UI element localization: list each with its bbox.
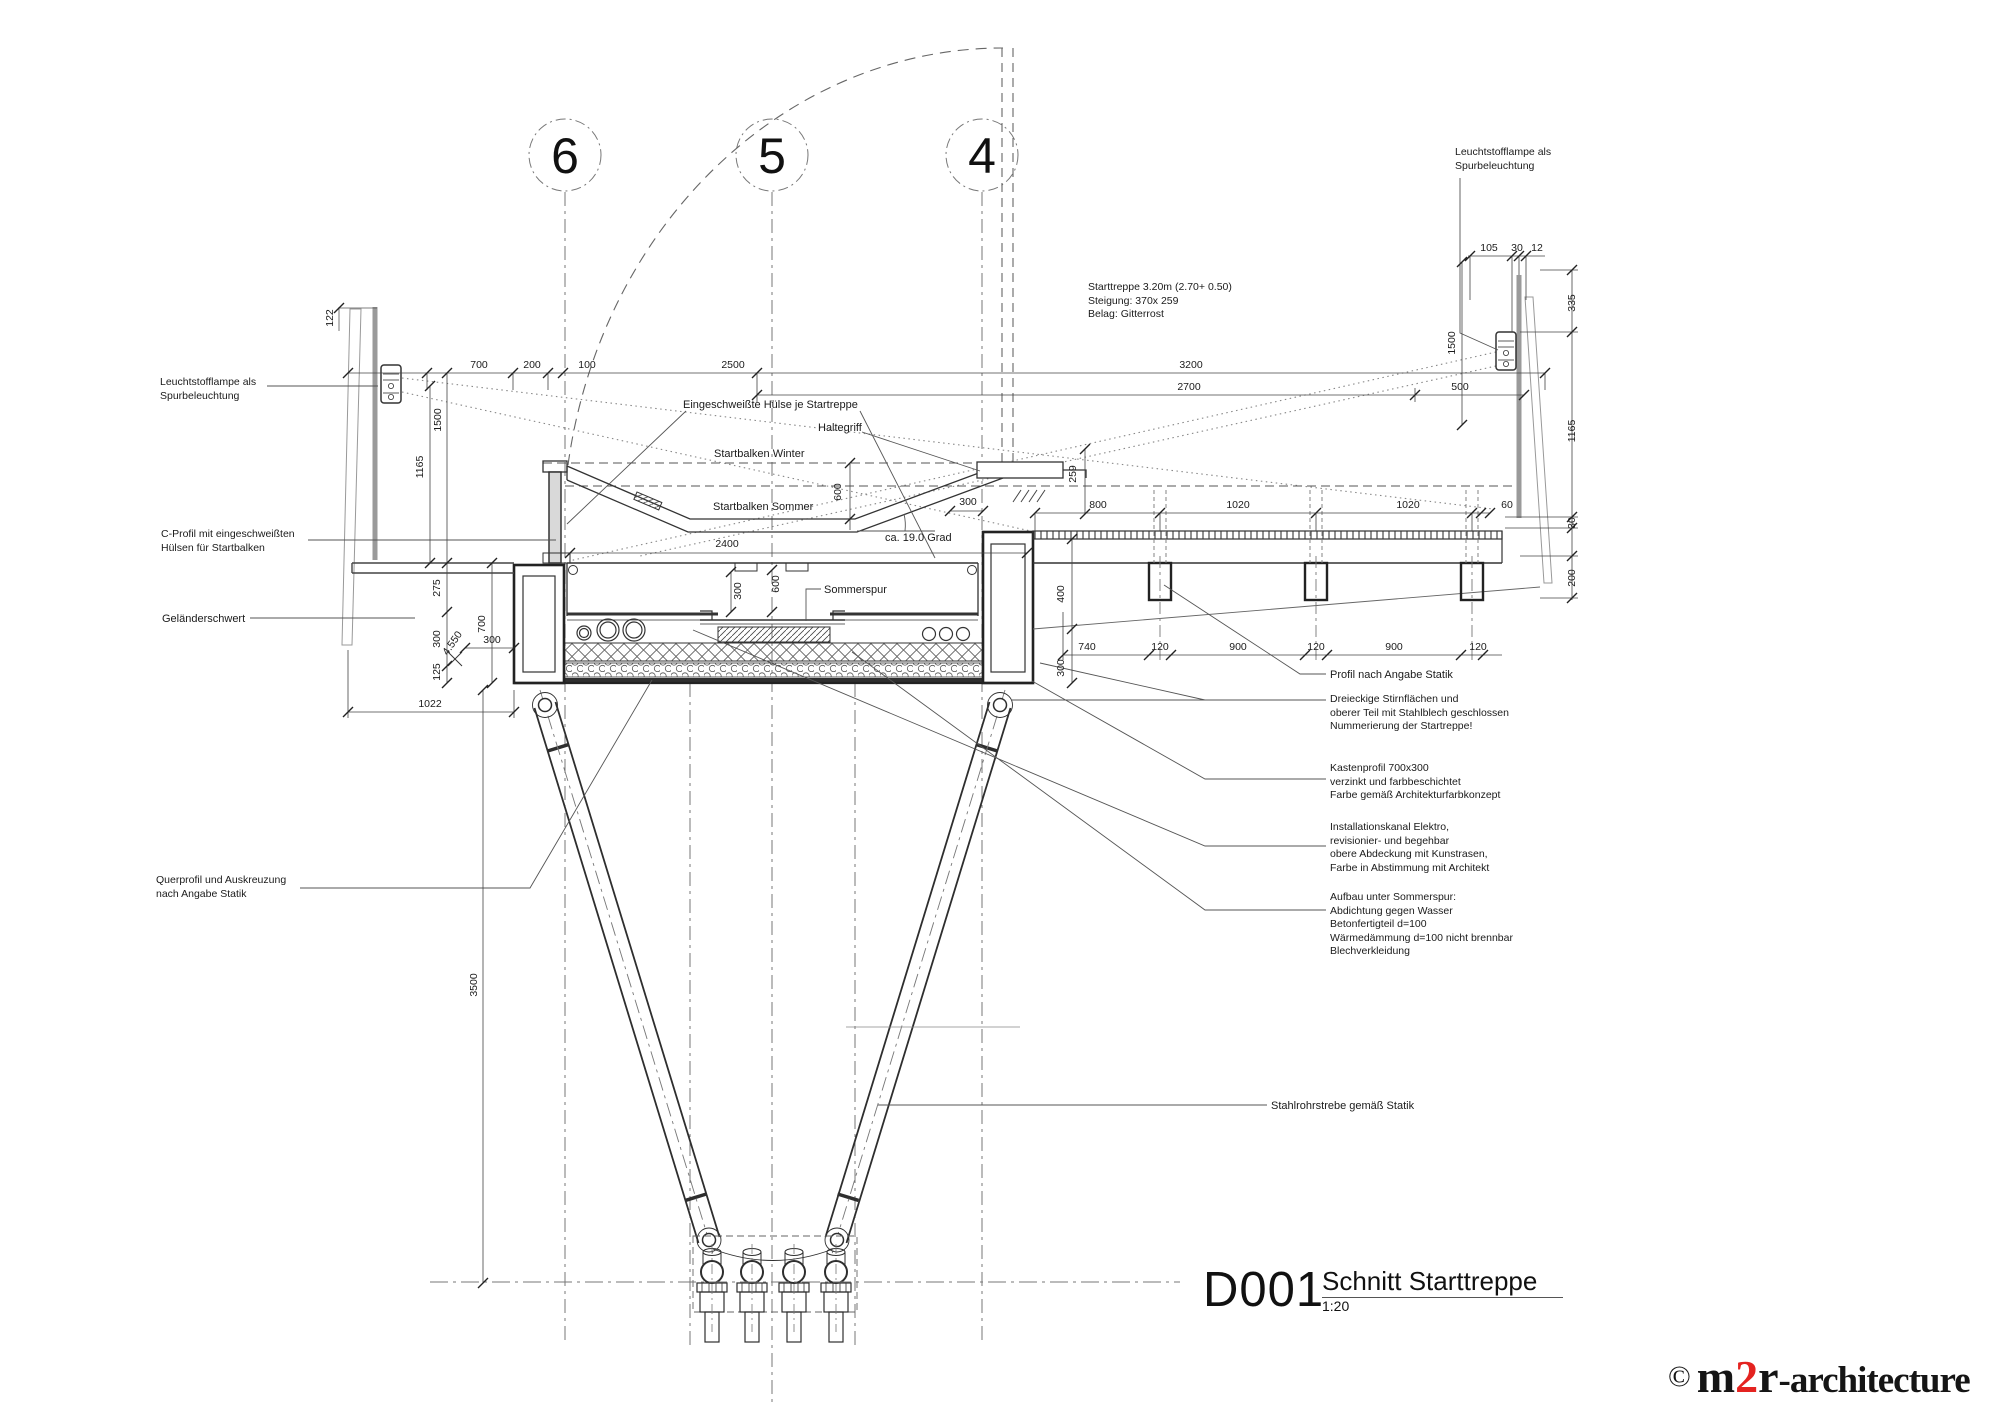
dim-700-top: 700	[470, 359, 488, 371]
label-line: Starttreppe 3.20m (2.70+ 0.50)	[1088, 281, 1232, 295]
sommerspur-track	[700, 611, 845, 642]
dim-200: 200	[523, 359, 541, 371]
label-line: Kastenprofil 700x300	[1330, 762, 1500, 776]
logo-m: m	[1697, 1351, 1735, 1402]
label-profil-statik: Profil nach Angabe Statik	[1330, 669, 1453, 681]
lamp-sight-lines	[402, 352, 1496, 561]
dim-400: 400	[1055, 585, 1067, 603]
label-stair-info: Starttreppe 3.20m (2.70+ 0.50) Steigung:…	[1088, 281, 1232, 322]
right-platform	[1033, 531, 1540, 629]
label-kastenprofil: Kastenprofil 700x300 verzinkt und farbbe…	[1330, 762, 1500, 803]
label-huelse: Eingeschweißte Hülse je Startreppe	[683, 399, 858, 411]
copyright-icon: ©	[1668, 1360, 1697, 1393]
dim-125: 125	[431, 663, 443, 681]
dim-259: 259	[1067, 465, 1079, 483]
label-gelaenderschwert: Geländerschwert	[162, 613, 245, 625]
left-lamp	[381, 365, 401, 403]
dim-275: 275	[431, 579, 443, 597]
label-line: obere Abdeckung mit Kunstrasen,	[1330, 848, 1489, 862]
title-underline	[1322, 1297, 1563, 1298]
label-line: Wärmedämmung d=100 nicht brennbar	[1330, 932, 1513, 946]
dim-120-b: 120	[1307, 641, 1325, 653]
label-c-profil: C-Profil mit eingeschweißten Hülsen für …	[161, 528, 295, 555]
label-line: Abdichtung gegen Wasser	[1330, 905, 1513, 919]
angle-arc	[857, 514, 935, 531]
label-line: C-Profil mit eingeschweißten	[161, 528, 295, 542]
dim-2400: 2400	[715, 538, 739, 550]
dim-300-chain: 300	[431, 630, 443, 648]
dim-30-right: 30	[1566, 517, 1578, 529]
dim-300-left: 300	[483, 634, 501, 646]
label-startbalken-sommer: Startbalken Sommer	[713, 501, 814, 513]
dim-600-channel: 600	[770, 575, 782, 593]
dim-600-beams: 600	[832, 483, 844, 501]
dim-200-right: 200	[1566, 569, 1578, 587]
firm-logo: ©m2r-architecture	[1668, 1350, 1970, 1403]
dim-3200: 3200	[1179, 359, 1203, 371]
dim-1500-left: 1500	[432, 408, 444, 432]
logo-architecture: -architecture	[1779, 1360, 1970, 1401]
stair-stringer	[567, 464, 1003, 532]
label-line: nach Angabe Statik	[156, 888, 286, 902]
dim-900-b: 900	[1385, 641, 1403, 653]
welded-sleeve	[634, 492, 662, 510]
dim-12: 12	[1531, 242, 1543, 254]
drawing-title: Schnitt Starttreppe	[1322, 1266, 1537, 1297]
label-line: Leuchtstofflampe als	[160, 376, 256, 390]
dim-3500: 3500	[468, 973, 480, 997]
label-sommerspur: Sommerspur	[824, 584, 887, 596]
dim-300-box: 300	[959, 496, 977, 508]
dim-300-right: 300	[1055, 659, 1067, 677]
weld-ticks	[1013, 490, 1045, 502]
dim-800: 800	[1089, 499, 1107, 511]
section-drawing-canvas: 6 5 4	[0, 0, 2000, 1414]
label-angle: ca. 19.0 Grad	[885, 532, 952, 544]
logo-r: r	[1758, 1351, 1778, 1402]
label-line: verzinkt und farbbeschichtet	[1330, 776, 1500, 790]
c-profile-post	[543, 461, 570, 563]
dim-740: 740	[1078, 641, 1096, 653]
label-startbalken-winter: Startbalken Winter	[714, 448, 805, 460]
dim-1165-right: 1165	[1566, 420, 1578, 443]
label-line: Spurbeleuchtung	[160, 390, 256, 404]
label-line: Farbe in Abstimmung mit Architekt	[1330, 862, 1489, 876]
label-aufbau: Aufbau unter Sommerspur: Abdichtung gege…	[1330, 891, 1513, 959]
label-line: Dreieckige Stirnflächen und	[1330, 693, 1509, 707]
label-line: Steigung: 370x 259	[1088, 295, 1232, 309]
dim-700-left: 700	[476, 615, 488, 633]
label-stahlrohr: Stahlrohrstrebe gemäß Statik	[1271, 1100, 1415, 1112]
label-lamp-right: Leuchtstofflampe als Spurbeleuchtung	[1455, 146, 1551, 173]
label-lamp-left: Leuchtstofflampe als Spurbeleuchtung	[160, 376, 256, 403]
label-line: revisionier- und begehbar	[1330, 835, 1489, 849]
drawing-sheet: 6 5 4	[0, 0, 2000, 1414]
label-querprofil: Querprofil und Auskreuzung nach Angabe S…	[156, 874, 286, 901]
grid-bubble-5: 5	[758, 128, 786, 184]
grid-bubble-6: 6	[551, 128, 579, 184]
dim-60: 60	[1501, 499, 1513, 511]
label-line: Farbe gemäß Architekturfarbkonzept	[1330, 789, 1500, 803]
dim-122: 122	[324, 309, 336, 327]
floor-buildup	[514, 643, 1033, 683]
dim-2700: 2700	[1177, 381, 1201, 393]
logo-two: 2	[1735, 1351, 1758, 1402]
grid-axes	[529, 119, 1018, 1402]
label-line: Blechverkleidung	[1330, 945, 1513, 959]
dim-1165-left: 1165	[414, 456, 426, 479]
label-haltegriff: Haltegriff	[818, 422, 863, 434]
dim-1020-b: 1020	[1396, 499, 1420, 511]
right-lamp	[1496, 332, 1516, 370]
label-line: Installationskanal Elektro,	[1330, 821, 1489, 835]
right-railing-blade	[1519, 275, 1552, 583]
dim-120-c: 120	[1469, 641, 1487, 653]
dim-105: 105	[1480, 242, 1498, 254]
dim-100: 100	[578, 359, 596, 371]
label-installationskanal: Installationskanal Elektro, revisionier-…	[1330, 821, 1489, 875]
drawing-scale: 1:20	[1322, 1298, 1349, 1314]
dim-335: 335	[1566, 294, 1578, 312]
dim-500: 500	[1451, 381, 1469, 393]
dim-900-a: 900	[1229, 641, 1247, 653]
drawing-number: D001	[1203, 1262, 1324, 1318]
dim-2500: 2500	[721, 359, 745, 371]
label-line: Nummerierung der Startreppe!	[1330, 720, 1509, 734]
left-railing-blade	[338, 307, 377, 645]
base-roller-assembly	[430, 1236, 1180, 1342]
label-line: oberer Teil mit Stahlblech geschlossen	[1330, 707, 1509, 721]
dim-1500-right: 1500	[1446, 331, 1458, 355]
grid-bubble-4: 4	[968, 128, 996, 184]
label-line: Leuchtstofflampe als	[1455, 146, 1551, 160]
label-dreieckige: Dreieckige Stirnflächen und oberer Teil …	[1330, 693, 1509, 734]
label-line: Aufbau unter Sommerspur:	[1330, 891, 1513, 905]
label-line: Hülsen für Startbalken	[161, 542, 295, 556]
label-line: Belag: Gitterrost	[1088, 308, 1232, 322]
dim-300-channel: 300	[732, 582, 744, 600]
dim-1022: 1022	[418, 698, 442, 710]
label-line: Querprofil und Auskreuzung	[156, 874, 286, 888]
dim-30-top: 30	[1511, 242, 1523, 254]
label-line: Spurbeleuchtung	[1455, 160, 1551, 174]
label-line: Betonfertigteil d=100	[1330, 918, 1513, 932]
dim-120-a: 120	[1151, 641, 1169, 653]
dim-1020-a: 1020	[1226, 499, 1250, 511]
